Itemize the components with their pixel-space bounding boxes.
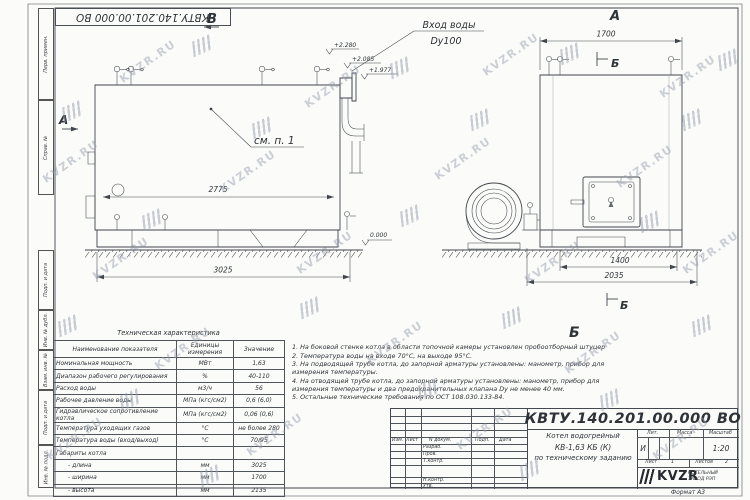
level-2280: +2.280: [334, 42, 356, 49]
view-a-right-label: А: [609, 9, 620, 24]
furnace-door: [571, 177, 640, 227]
pump-valve: [522, 203, 540, 231]
col-list: Лист: [406, 438, 418, 443]
frame-strip-inv-dubl: Инв. № дубл.: [38, 310, 54, 350]
section-b-top-label: Б: [611, 57, 619, 70]
section-b-bottom-mark: Б: [607, 293, 628, 312]
row-nkontr: Н.контр.: [423, 478, 444, 483]
row-tkontr: Т.контр.: [423, 459, 444, 464]
ground-side: [442, 250, 702, 258]
top-doc-number-box: КВТУ.140.201.00.000 ВО: [55, 8, 231, 26]
dim-1400: 1400: [610, 256, 629, 265]
see-item-leader: см. п. 1: [210, 108, 304, 147]
level-zero: 0.000: [370, 232, 387, 239]
table-row: Номинальная мощностьМВт1,63: [54, 358, 285, 370]
dim-1700: 1700: [596, 30, 615, 39]
water-inlet-callout: Вход воды Dy100: [352, 20, 484, 71]
col-podp: Подп.: [475, 438, 490, 443]
table-row: Рабочее давление водыМПа (кгс/см2)0,6 (6…: [54, 395, 285, 407]
technical-notes: 1. На боковой стенке котла в области топ…: [292, 343, 614, 402]
col-ndoc: N докум.: [429, 438, 451, 443]
dim-2775: 2775: [208, 185, 227, 194]
kvzr-logo-icon: [639, 469, 656, 484]
frame-strip-vzam-inv: Взам. инв. №: [38, 350, 54, 390]
level-2085: +2.085: [352, 56, 374, 63]
front-view: 2775 3025 см. п. 1 +2.280 +2.085 +1.977 …: [58, 12, 484, 282]
table-row: Диапазон рабочего регулирования%40-110: [54, 370, 285, 382]
scale-value: 1:20: [703, 437, 739, 459]
title-block: КВТУ.140.201.00.000 ВО Изм. Лист N докум…: [390, 408, 738, 488]
format-label: Формат А3: [628, 489, 748, 496]
see-item-label: см. п. 1: [254, 135, 295, 147]
note-3: 3. На подводящей трубе котла, до запорно…: [292, 360, 614, 376]
drawing-sheet: { "sheet": { "doc_number": "КВТУ.140.201…: [0, 0, 750, 500]
note-1: 1. На боковой стенке котла в области топ…: [292, 343, 614, 351]
boiler-base-side: [540, 230, 682, 247]
dim-2035: 2035: [604, 271, 623, 280]
inlet-label-1: Вход воды: [422, 20, 476, 31]
top-valves-front: [114, 66, 329, 85]
view-a-left-label: А: [58, 113, 68, 127]
sight-glass-icon: [112, 184, 124, 196]
tech-table: Техническая характеристика Наименование …: [53, 329, 284, 497]
sheets-label: Листов: [695, 460, 713, 465]
title-doc-number: КВТУ.140.201.00.000 ВО: [527, 409, 739, 429]
drain-valves: [115, 212, 357, 231]
scale-header: Масштаб: [709, 431, 732, 436]
lit-value: И: [638, 437, 648, 459]
table-row: - ширинамм1700: [54, 472, 285, 484]
table-row: - высотамм2135: [54, 484, 285, 496]
side-view: А 1700 Б: [442, 9, 702, 341]
sheet-label: Лист: [645, 460, 657, 465]
mass-header: Масса: [677, 431, 692, 436]
level-1977: +1.977: [369, 67, 391, 74]
note-5: 5. Остальные технические требования по О…: [292, 393, 614, 401]
frame-strip-perv-primen: Перв. примен.: [38, 8, 54, 100]
dim-3025: 3025: [213, 266, 232, 275]
section-b-top-mark: Б: [597, 52, 619, 70]
inlet-label-2: Dy100: [430, 36, 461, 47]
section-b-bottom-label: Б: [620, 299, 628, 312]
note-2: 2. Температура воды на входе 70°С, на вы…: [292, 352, 614, 360]
row-utv: Утв.: [423, 484, 433, 489]
table-row: Температура воды (вход/выход)°С70/95: [54, 434, 285, 446]
col-data: Дата: [499, 438, 511, 443]
frame-strip-podp-data-2: Подп. и дата: [38, 390, 54, 445]
level-marks: +2.280 +2.085 +1.977 0.000: [326, 42, 398, 245]
water-inlet-flange: [340, 73, 364, 173]
top-doc-number: КВТУ.140.201.00.000 ВО: [76, 11, 209, 23]
ground-front: [85, 250, 363, 258]
fan-icon: [466, 183, 522, 249]
frame-strip-sprav: Справ. №: [38, 100, 54, 195]
table-row: - длинамм3025: [54, 459, 285, 471]
sheet-value: 1: [671, 460, 674, 465]
boiler-front-outline: [95, 85, 340, 230]
tech-table-title: Техническая характеристика: [53, 329, 284, 337]
row-razrab: Разраб.: [423, 445, 442, 450]
frame-strip-podp-data-1: Подп. и дата: [38, 250, 54, 310]
boiler-base-front: [97, 230, 338, 247]
tech-header-row: Наименование показателя Единицы измерени…: [54, 341, 285, 358]
sheets-value: 2: [725, 460, 728, 465]
table-row: Гидравлическое сопротивление котлаМПа (к…: [54, 407, 285, 422]
row-prov: Пров.: [423, 452, 437, 457]
lit-header: Лит.: [647, 431, 658, 436]
company-name: КОТЕЛЬНЫЙ ЗАВОД РЭП: [688, 471, 738, 482]
view-b-big-label: Б: [569, 325, 580, 341]
table-row: Расход водым3/ч56: [54, 382, 285, 394]
document-title: Котел водогрейный КВ-1,63 КБ (К) по техн…: [528, 431, 638, 464]
table-row: Габариты котла: [54, 447, 285, 459]
frame-strip-inv-podl: Инв. № подл.: [38, 445, 54, 488]
col-izm: Изм.: [392, 438, 403, 443]
dim-2775-group: 2775: [103, 185, 334, 199]
table-row: Температура уходящих газов°Сне более 280: [54, 422, 285, 434]
note-4: 4. На отводящей трубе котла, до запорной…: [292, 377, 614, 393]
door-handle: [571, 200, 584, 204]
